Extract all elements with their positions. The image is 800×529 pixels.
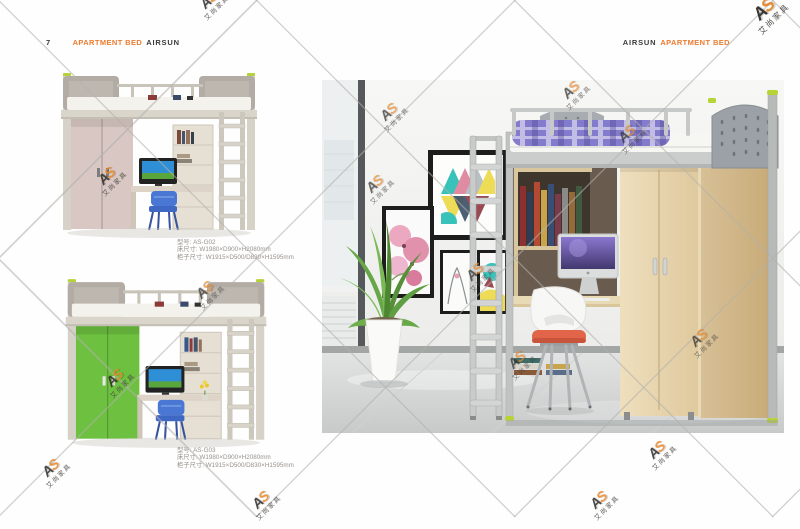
watermark-logo: AS 艾尚家具 xyxy=(576,477,628,529)
main-room-photo xyxy=(322,80,784,433)
watermark-logo: AS 艾尚家具 xyxy=(186,0,238,29)
mattress xyxy=(72,304,260,317)
product-bed-size: 床尺寸: W1980×D900×H2080mm xyxy=(177,454,294,461)
product-2-photo xyxy=(50,276,282,452)
wardrobe-handle xyxy=(112,376,115,385)
wardrobe-handle xyxy=(663,258,667,275)
header-left: 7 APARTMENT BED AIRSUN xyxy=(46,38,184,47)
art-frame-sketch xyxy=(440,250,474,314)
wardrobe-side-panel xyxy=(698,166,770,418)
window-sill xyxy=(322,286,358,292)
ladder xyxy=(219,112,245,230)
wardrobe-handle xyxy=(103,376,106,385)
product-1-caption: 型号: AS-G02 床尺寸: W1980×D900×H2080mm 柜子尺寸:… xyxy=(177,239,294,261)
room-scene xyxy=(322,80,784,433)
computer-monitor xyxy=(139,158,177,186)
wardrobe xyxy=(620,166,698,420)
bookshelf xyxy=(173,125,213,229)
product-2-illustration xyxy=(50,276,282,452)
wardrobe-handle xyxy=(97,168,100,177)
product-2-caption: 型号: AS-G03 床尺寸: W1980×D900×H2080mm 柜子尺寸:… xyxy=(177,447,294,469)
mattress xyxy=(67,97,251,110)
product-1-photo xyxy=(50,70,268,242)
window-frame xyxy=(358,80,365,346)
header-right-brand: AIRSUN xyxy=(623,38,657,47)
frame-post-left xyxy=(506,132,513,418)
header-right-category: APARTMENT BED xyxy=(660,38,730,47)
watermark-logo: AS 艾尚家具 xyxy=(28,445,80,497)
computer-monitor xyxy=(146,366,185,395)
product-bed-size: 床尺寸: W1980×D900×H2080mm xyxy=(177,246,294,253)
watermark-logo: AS 艾尚家具 xyxy=(634,427,686,479)
floor-shadow xyxy=(67,228,251,238)
shutter-blinds xyxy=(322,296,356,346)
header-left-category: APARTMENT BED xyxy=(73,38,143,47)
guardrail xyxy=(117,84,203,98)
wardrobe-handle xyxy=(106,168,109,177)
watermark-logo: AS 艾尚家具 xyxy=(238,477,290,529)
wardrobe xyxy=(71,119,133,229)
page-number: 7 xyxy=(46,38,51,47)
guardrail xyxy=(123,290,211,304)
chair-backrest xyxy=(531,287,586,332)
product-1-illustration xyxy=(50,70,268,242)
header-left-brand: AIRSUN xyxy=(146,38,180,47)
header-right: AIRSUN APARTMENT BED xyxy=(619,38,730,47)
catalog-page: 7 APARTMENT BED AIRSUN AIRSUN APARTMENT … xyxy=(0,0,800,517)
ladder xyxy=(227,319,254,440)
imac-screen xyxy=(561,237,615,269)
product-cabinet-size: 柜子尺寸: W1915×D500/D830×H1595mm xyxy=(177,254,294,261)
wardrobe-handle xyxy=(653,258,657,275)
wardrobe xyxy=(76,326,139,439)
window xyxy=(322,80,365,346)
product-cabinet-size: 柜子尺寸: W1915×D500/D830×H1595mm xyxy=(177,462,294,469)
frame-post-right xyxy=(768,94,777,420)
watermark-logo: AS 艾尚家具 xyxy=(735,0,800,46)
